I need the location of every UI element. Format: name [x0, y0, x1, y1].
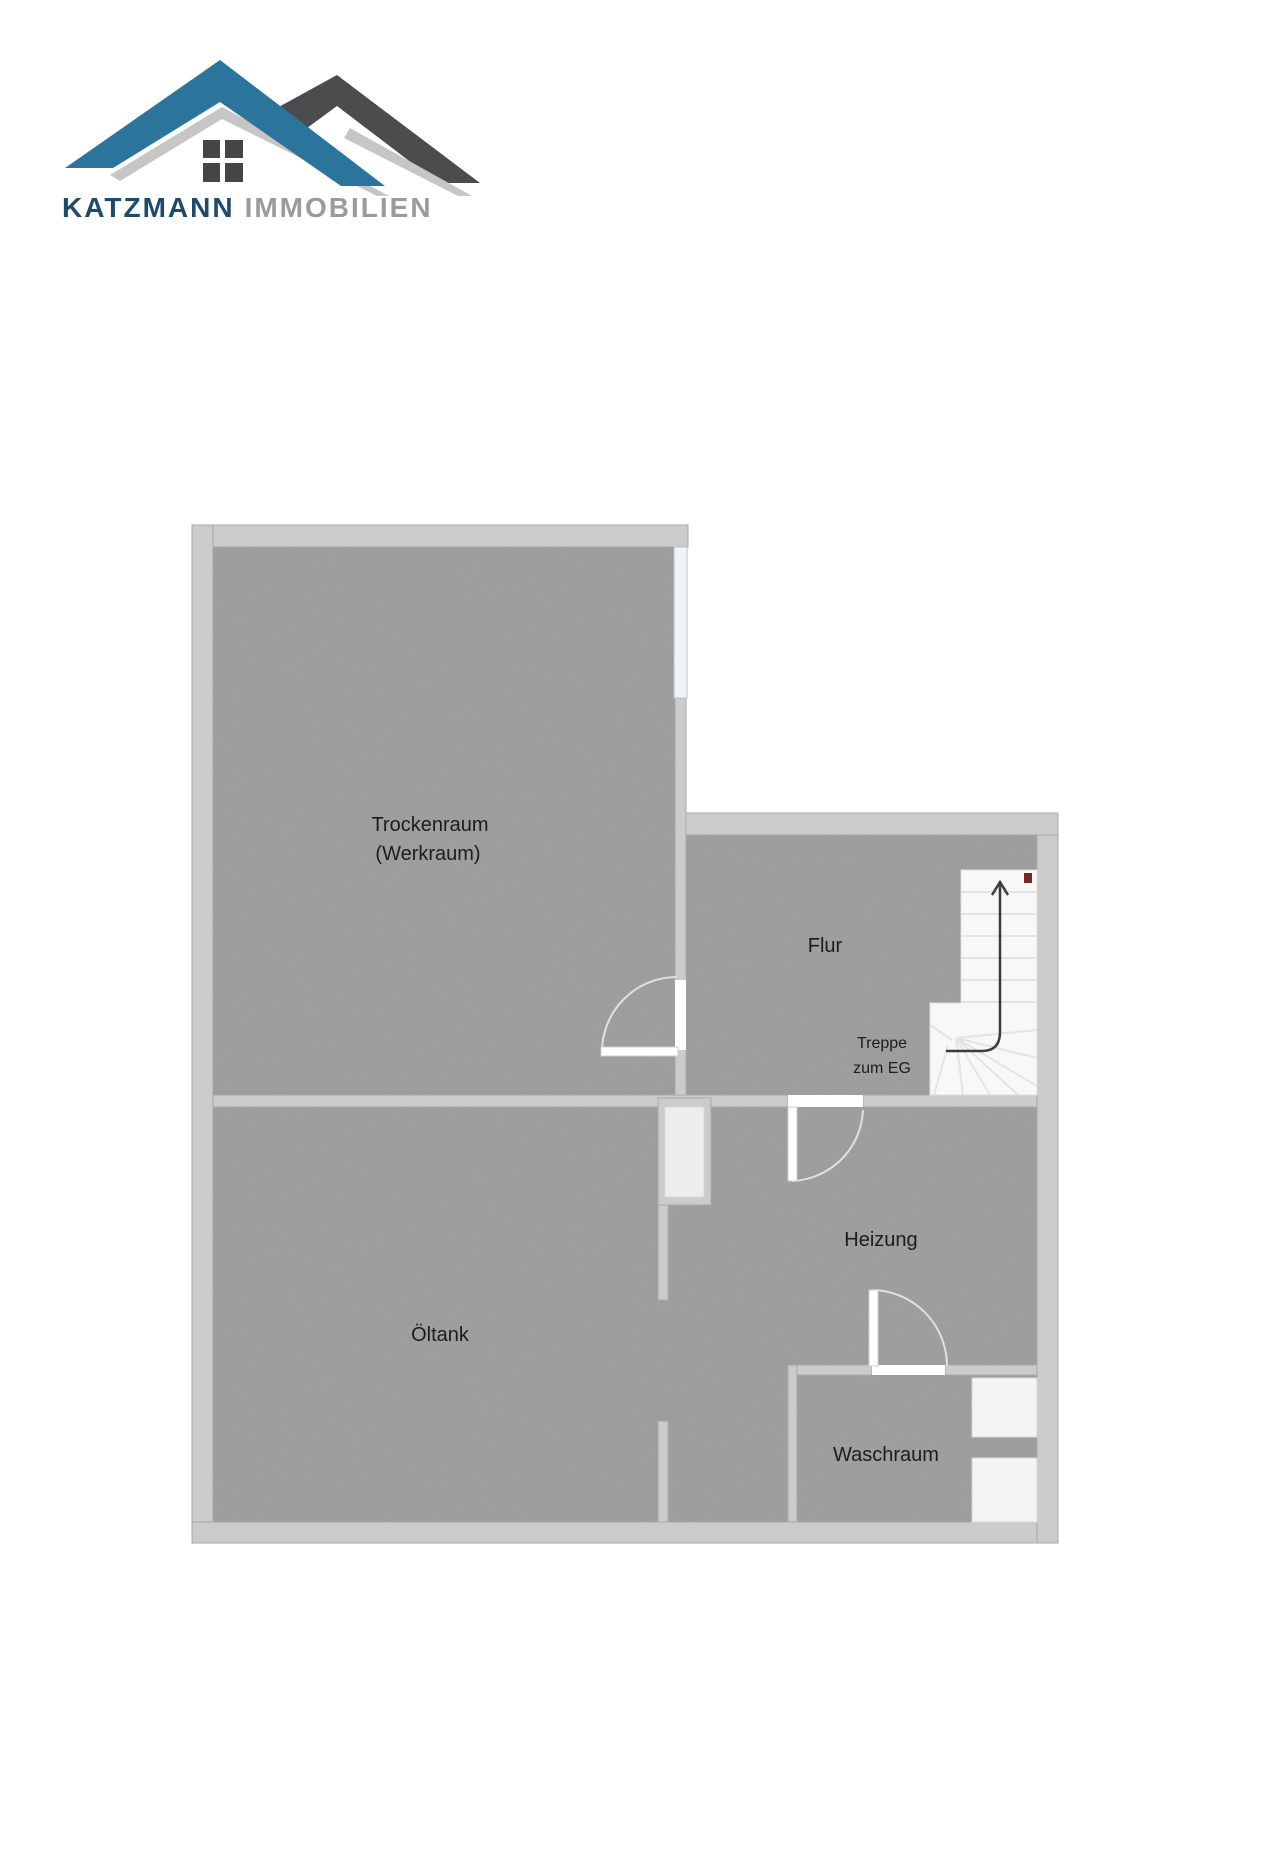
label-treppe-line1: Treppe — [857, 1035, 907, 1052]
wall-oeltank-stub-upper — [658, 1205, 668, 1300]
company-logo — [65, 60, 480, 196]
page: Trockenraum (Werkraum) Flur Treppe zum E… — [0, 0, 1280, 1849]
wall-trockenraum-right-upper — [675, 694, 686, 984]
label-oeltank: Öltank — [411, 1324, 470, 1346]
wall-bottom — [192, 1522, 1058, 1543]
label-trockenraum-sub: (Werkraum) — [375, 843, 480, 865]
door-heizung-threshold — [788, 1095, 863, 1107]
label-flur: Flur — [808, 935, 843, 957]
fixture-lower — [972, 1458, 1037, 1522]
wall-left — [192, 525, 213, 1543]
label-treppe-line2: zum EG — [853, 1060, 911, 1077]
brand-name-secondary: IMMOBILIEN — [245, 192, 433, 223]
chimney-flue — [665, 1107, 704, 1197]
stair-top-marker — [1024, 873, 1032, 883]
floorplan-drawing: Trockenraum (Werkraum) Flur Treppe zum E… — [0, 0, 1280, 1849]
label-trockenraum: Trockenraum — [371, 814, 488, 836]
wall-waschraum-left — [788, 1365, 797, 1522]
wall-flur-top — [686, 813, 1058, 835]
logo-window-icon — [203, 140, 243, 182]
brand-name-primary: KATZMANN — [62, 192, 235, 223]
door-heizung-leaf — [788, 1107, 797, 1181]
wall-right — [1037, 813, 1058, 1543]
wall-top — [192, 525, 688, 547]
door-waschraum-threshold — [872, 1365, 945, 1375]
label-waschraum: Waschraum — [833, 1444, 939, 1466]
room-floors — [213, 547, 1037, 1523]
door-trockenraum-leaf — [601, 1047, 678, 1056]
wall-waschraum-top-right — [945, 1365, 1037, 1375]
door-trockenraum-threshold — [675, 980, 686, 1050]
door-waschraum-leaf — [869, 1290, 878, 1366]
wall-waschraum-top-left — [788, 1365, 872, 1375]
wall-oeltank-stub-lower — [658, 1421, 668, 1522]
label-heizung: Heizung — [844, 1229, 917, 1251]
chimney — [658, 1098, 711, 1205]
fixture-upper — [972, 1378, 1037, 1437]
window-trockenraum — [674, 547, 687, 698]
logo-wordmark: KATZMANNIMMOBILIEN — [62, 192, 433, 224]
wall-mid-right — [863, 1095, 1037, 1107]
